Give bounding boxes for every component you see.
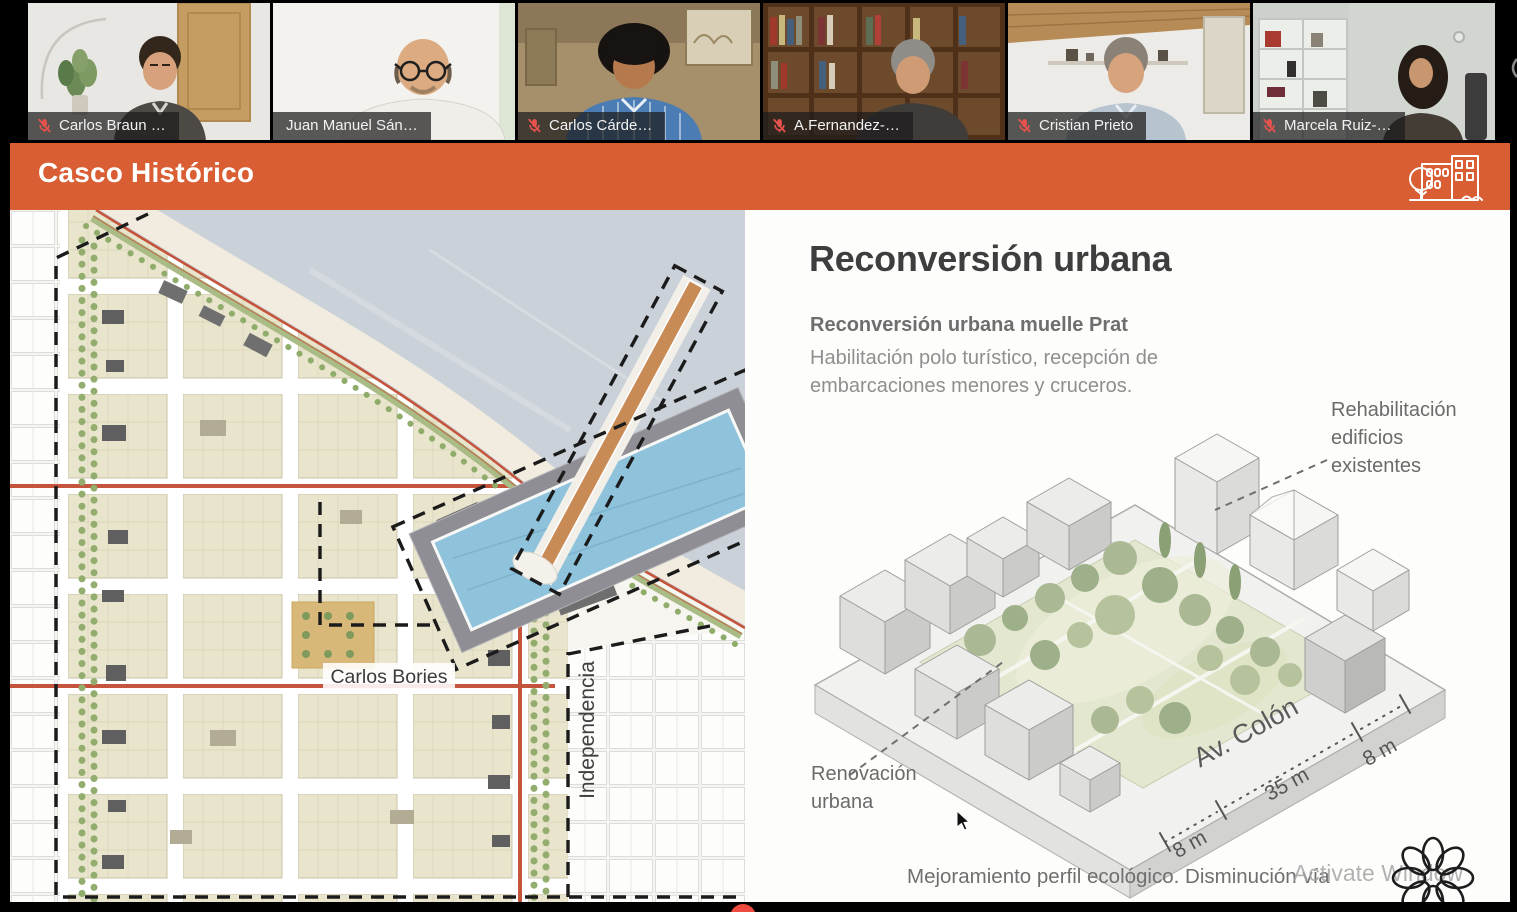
buildings-logo-icon <box>1406 150 1488 204</box>
participant-name-tag: Carlos Cárde… <box>518 112 665 140</box>
label-line: existentes <box>1331 452 1457 480</box>
participant-tile-carlos-cardenas[interactable]: Carlos Cárde… <box>518 3 760 140</box>
participant-name: Carlos Cárde… <box>549 117 652 134</box>
participant-name-tag: Carlos Braun … <box>28 112 179 140</box>
slide-title: Casco Histórico <box>38 157 254 189</box>
slide-footer-text: Mejoramiento perfil ecológico. Disminuci… <box>907 865 1330 889</box>
mic-muted-icon <box>1262 118 1277 133</box>
label-line: Renovación <box>811 760 917 788</box>
label-renovacion-urbana: Renovación urbana <box>811 760 917 816</box>
participant-name: Marcela Ruiz-… <box>1284 117 1392 134</box>
urban-plan-map: Carlos Bories Independencia <box>10 210 745 902</box>
zoom-meeting-window: Carlos Braun … Juan Manuel Sán… <box>0 0 1517 912</box>
panel-subtitle: Reconversión urbana muelle Prat <box>810 314 1128 337</box>
label-line: edificios <box>1331 424 1457 452</box>
label-rehabilitacion-edificios: Rehabilitación edificios existentes <box>1331 396 1457 480</box>
map-pane: Carlos Bories Independencia <box>10 210 745 902</box>
map-street-label-carlos-bories: Carlos Bories <box>330 666 447 688</box>
participant-tile-marcela-ruiz[interactable]: Marcela Ruiz-… <box>1253 3 1495 140</box>
mic-muted-icon <box>527 118 542 133</box>
panel-title: Reconversión urbana <box>809 238 1171 280</box>
participant-name-tag: Juan Manuel Sán… <box>273 112 431 140</box>
participant-tile-cristian-prieto[interactable]: Cristian Prieto <box>1008 3 1250 140</box>
map-street-label-independencia: Independencia <box>576 661 599 799</box>
mic-muted-icon <box>37 118 52 133</box>
participant-name-tag: Cristian Prieto <box>1008 112 1146 140</box>
taskbar-red-dot-icon[interactable] <box>730 904 756 912</box>
label-line: Rehabilitación <box>1331 396 1457 424</box>
shared-screen: Casco Histórico <box>10 143 1510 902</box>
slide-content-pane: Av. Colón 8 m 35 m 8 m Reconversión urba… <box>745 210 1510 902</box>
participant-strip: Carlos Braun … Juan Manuel Sán… <box>28 3 1495 140</box>
panel-body-line: embarcaciones menores y cruceros. <box>810 372 1158 400</box>
participant-name: Juan Manuel Sán… <box>286 117 418 134</box>
participant-name: A.Fernandez-… <box>794 117 900 134</box>
participant-name: Carlos Braun … <box>59 117 166 134</box>
flower-logo-icon <box>1387 832 1479 902</box>
mic-muted-icon <box>1017 118 1032 133</box>
participant-tile-a-fernandez[interactable]: A.Fernandez-… <box>763 3 1005 140</box>
participant-name-tag: A.Fernandez-… <box>763 112 913 140</box>
participant-tile-juan-manuel[interactable]: Juan Manuel Sán… <box>273 3 515 140</box>
label-line: urbana <box>811 788 917 816</box>
panel-body: Habilitación polo turístico, recepción d… <box>810 344 1158 400</box>
scroll-participants-icon[interactable] <box>1506 57 1517 79</box>
cursor-icon <box>956 810 972 832</box>
participant-tile-carlos-braun[interactable]: Carlos Braun … <box>28 3 270 140</box>
slide-header: Casco Histórico <box>10 143 1510 210</box>
participant-name: Cristian Prieto <box>1039 117 1133 134</box>
participant-name-tag: Marcela Ruiz-… <box>1253 112 1405 140</box>
mic-muted-icon <box>772 118 787 133</box>
panel-body-line: Habilitación polo turístico, recepción d… <box>810 344 1158 372</box>
